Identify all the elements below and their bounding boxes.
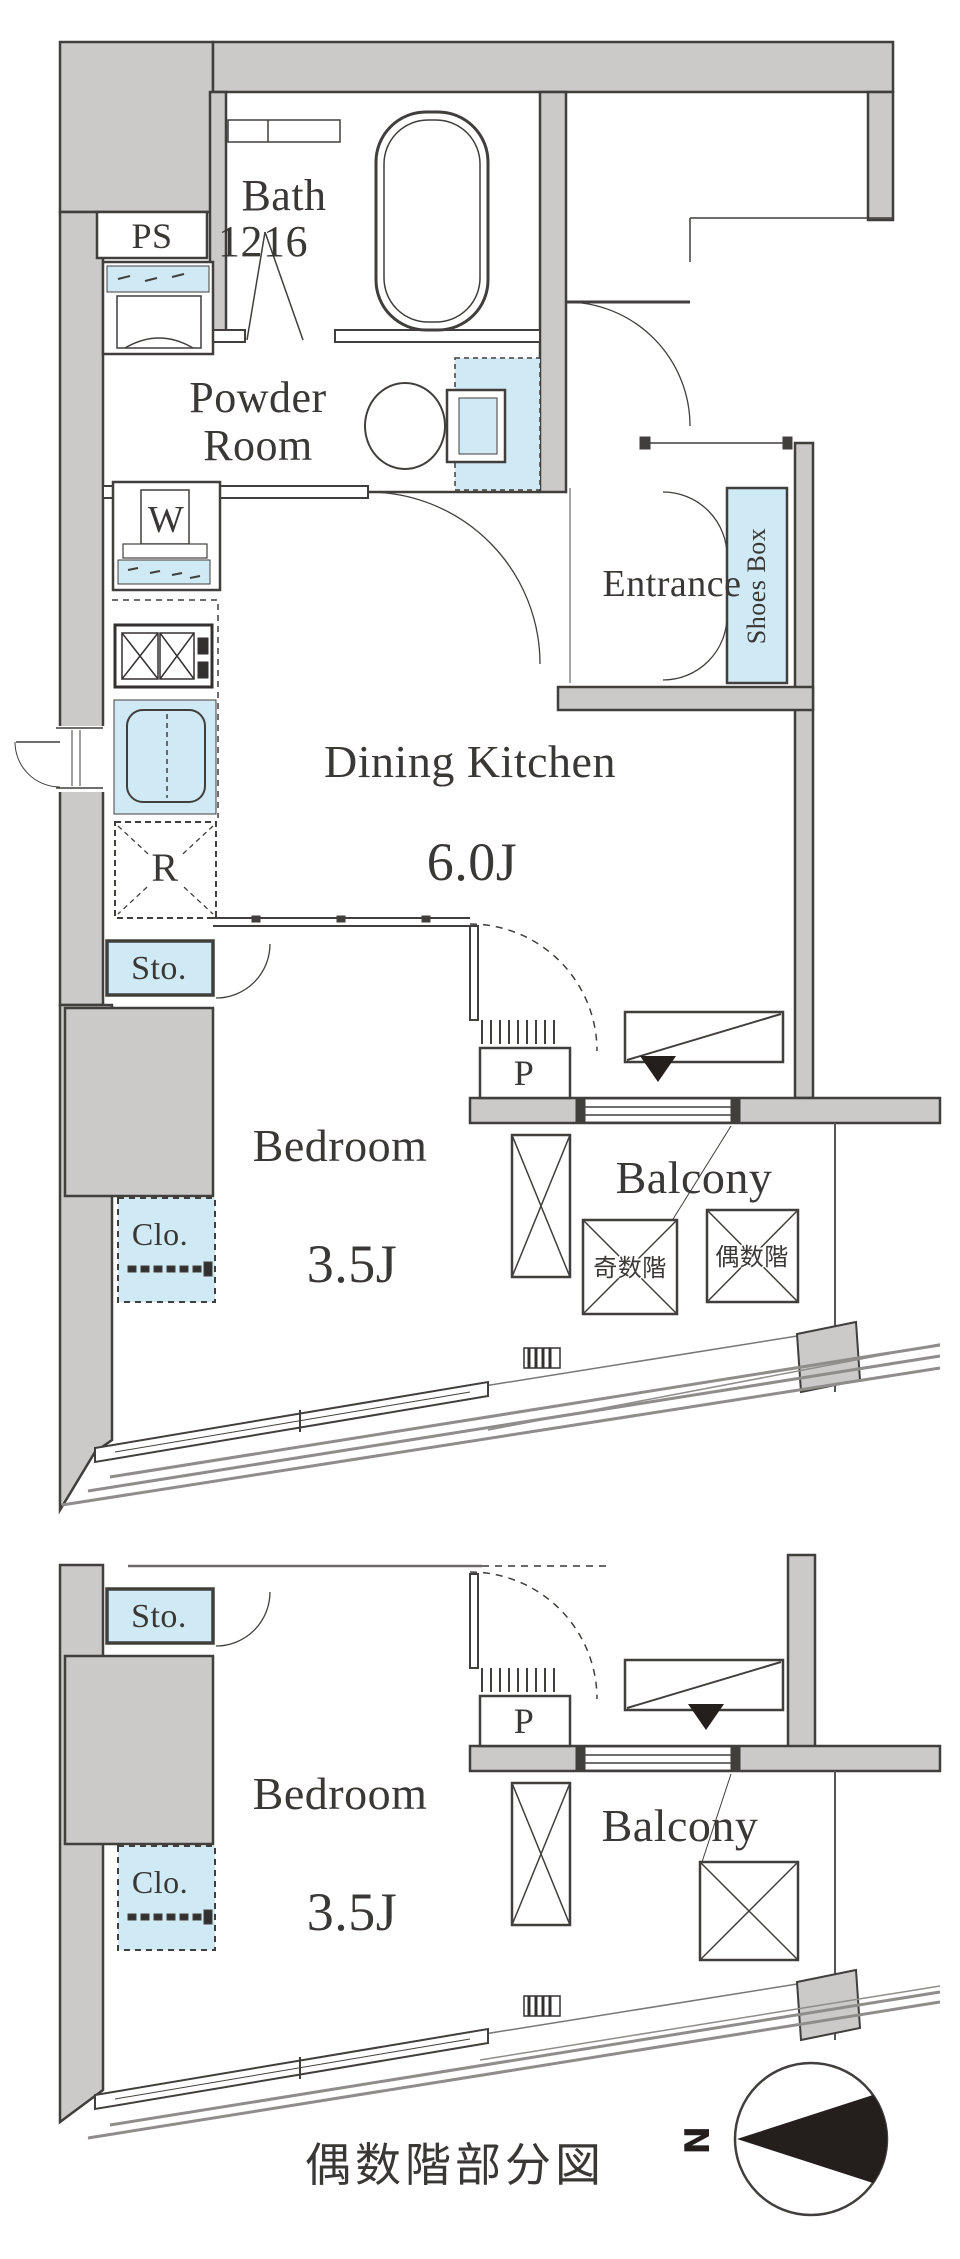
sliding-window bbox=[576, 1098, 740, 1123]
bath-room-label: Bath bbox=[241, 174, 326, 218]
evacuation-hatch-lower bbox=[700, 1862, 798, 1960]
accordion-door-hatch-lower bbox=[482, 1668, 554, 1692]
bedroom-partition-lower bbox=[470, 1574, 478, 1668]
fridge-label: R bbox=[148, 848, 181, 888]
bedroom-label-lower: Bedroom bbox=[253, 1771, 428, 1817]
closet-label-lower: Clo. bbox=[132, 1866, 188, 1898]
floor-plan-page: Bath 1216 PS Powder Room W Entrance Shoe… bbox=[0, 0, 960, 2259]
pipe-space-label-lower: P bbox=[514, 1703, 535, 1739]
dining-kitchen-size-label: 6.0J bbox=[427, 835, 518, 889]
drain-icon-lower bbox=[524, 1996, 560, 2016]
ps-label: PS bbox=[131, 218, 172, 254]
compass-north-label: N bbox=[681, 2126, 715, 2155]
bedroom-window-wall bbox=[95, 1382, 488, 1462]
powder-room-label-line2: Room bbox=[203, 424, 313, 468]
closet-label: Clo. bbox=[132, 1218, 188, 1250]
plan-caption: 偶数階部分図 bbox=[305, 2142, 605, 2188]
accordion-door-hatch bbox=[482, 1020, 554, 1044]
kitchen-window bbox=[15, 726, 106, 792]
washer-label: W bbox=[148, 501, 184, 539]
washbasin-icon bbox=[103, 262, 213, 354]
bedroom-label: Bedroom bbox=[253, 1123, 428, 1169]
balcony-label: Balcony bbox=[616, 1155, 773, 1201]
sink-icon bbox=[114, 700, 216, 814]
beam-marker bbox=[625, 1012, 783, 1082]
pipe-space-label: P bbox=[514, 1055, 535, 1091]
powder-room-label-line1: Powder bbox=[189, 376, 326, 420]
toilet-icon bbox=[365, 358, 540, 490]
bathtub-icon bbox=[376, 112, 488, 330]
beam-marker-lower bbox=[625, 1660, 783, 1730]
sliding-window-lower bbox=[576, 1746, 740, 1771]
storage-label-lower: Sto. bbox=[131, 1600, 187, 1634]
dining-kitchen-label: Dining Kitchen bbox=[324, 739, 616, 785]
drain-icon bbox=[524, 1348, 560, 1368]
bedroom-size-label-lower: 3.5J bbox=[307, 1885, 398, 1939]
compass-icon bbox=[735, 2063, 887, 2215]
plan-linework bbox=[0, 0, 960, 2259]
storage-label: Sto. bbox=[131, 952, 187, 986]
shoes-box-label: Shoes Box bbox=[744, 528, 770, 644]
balcony-label-lower: Balcony bbox=[602, 1803, 759, 1849]
bedroom-partition bbox=[213, 916, 597, 1051]
hatch-odd-floor-label: 奇数階 bbox=[593, 1256, 667, 1280]
entrance-label: Entrance bbox=[602, 565, 741, 603]
bath-size-label: 1216 bbox=[218, 220, 308, 264]
bedroom-size-label: 3.5J bbox=[307, 1237, 398, 1291]
hatch-even-floor-label: 偶数階 bbox=[715, 1245, 789, 1269]
entrance-door bbox=[566, 218, 893, 426]
stove-icon bbox=[115, 625, 212, 687]
